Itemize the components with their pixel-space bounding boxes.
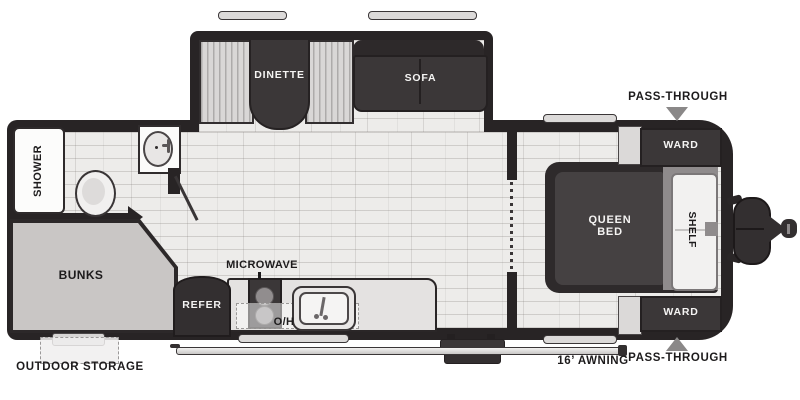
sofa-label: SOFA [355,73,486,85]
dinette-table: DINETTE [249,40,310,130]
kitchen-faucet-base-right [323,315,328,320]
queen-bed-label: QUEEN BED [584,214,636,238]
window-top-bedroom [543,114,617,123]
kitchen-faucet-base-left [314,314,319,319]
pass-through-bottom-arrow [666,337,688,351]
window-panel-bed-top [618,126,642,165]
bunks-label: BUNKS [36,269,126,282]
bedroom-wall-upper [507,132,517,180]
outdoor-storage-label: OUTDOOR STORAGE [4,361,156,373]
refrigerator: REFER [173,276,231,337]
shelf-label: SHELF [685,212,696,248]
window-slide-left [218,11,287,20]
sofa-seat: SOFA [353,55,488,112]
overhead-label: O/H [266,317,302,329]
ward-bottom-label: WARD [642,307,720,319]
refer-label: REFER [175,300,229,312]
window-bottom-kitchen [238,334,349,343]
window-bottom-bedroom [543,335,617,344]
bath-sink-drain [155,146,158,149]
wardrobe-bottom: WARD [640,296,722,332]
pass-through-bottom-label: PASS-THROUGH [612,352,744,364]
ward-top-label: WARD [642,140,720,152]
pass-through-top-label: PASS-THROUGH [612,91,744,103]
wardrobe-top: WARD [640,128,722,167]
window-panel-bed-bottom [618,296,642,335]
toilet-bowl [82,178,105,205]
microwave-label: MICROWAVE [210,260,314,272]
awning-rail-left-cap [170,344,180,348]
dinette-label: DINETTE [251,70,308,82]
pass-through-top-arrow [666,107,688,121]
shower-label: SHOWER [33,145,45,197]
window-slide-right [368,11,477,20]
shower-stall: SHOWER [13,127,65,214]
shelf-label-box: SHELF [676,203,706,257]
bath-faucet-spout [162,144,169,147]
microwave-pointer [258,272,261,279]
bedroom-door-track [510,182,513,270]
hitch-coupler-pin [787,224,790,234]
dinette-bench-left [199,40,254,124]
floorplan-canvas: DINETTE SOFA SHOWER BUNKS REFER MICROWAV… [0,0,800,400]
outdoor-storage-hatch [40,337,119,364]
bedroom-wall-lower [507,272,517,328]
awning-rail [176,347,627,355]
dinette-bench-right [305,40,354,124]
propane-tank-seam [736,228,765,230]
shelf-notch [705,222,718,236]
